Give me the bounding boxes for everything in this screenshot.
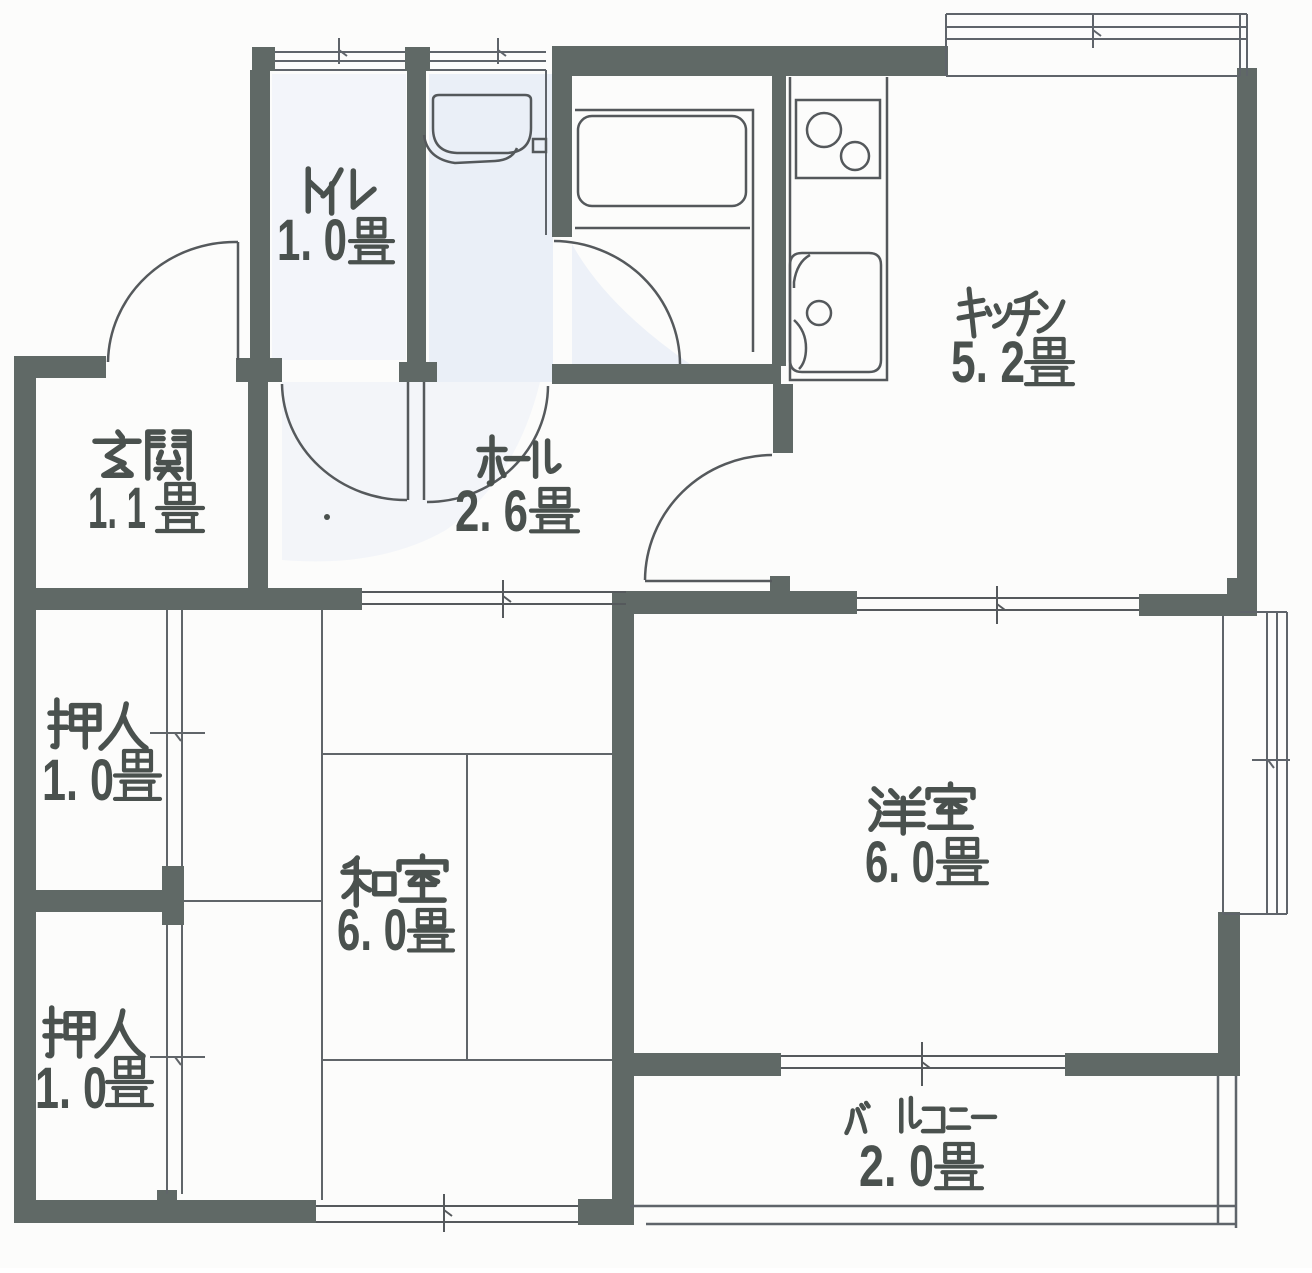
svg-text:6. 0: 6. 0 — [865, 830, 935, 895]
svg-text:1. 0: 1. 0 — [42, 748, 114, 813]
svg-text:6. 0: 6. 0 — [337, 898, 407, 963]
svg-text:1. 0: 1. 0 — [35, 1056, 107, 1121]
svg-text:2. 6: 2. 6 — [455, 479, 528, 544]
svg-text:2. 0: 2. 0 — [859, 1134, 934, 1199]
svg-text:1. 1: 1. 1 — [88, 476, 146, 541]
svg-text:5. 2: 5. 2 — [951, 330, 1025, 395]
svg-text:1. 0: 1. 0 — [277, 208, 347, 273]
